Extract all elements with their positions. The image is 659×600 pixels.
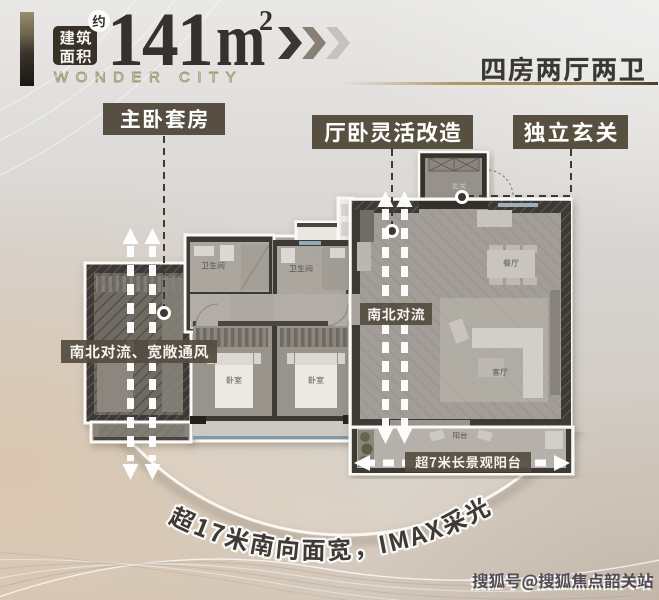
- svg-text:m: m: [216, 0, 265, 82]
- svg-text:141: 141: [107, 0, 212, 82]
- svg-text:2: 2: [259, 6, 273, 37]
